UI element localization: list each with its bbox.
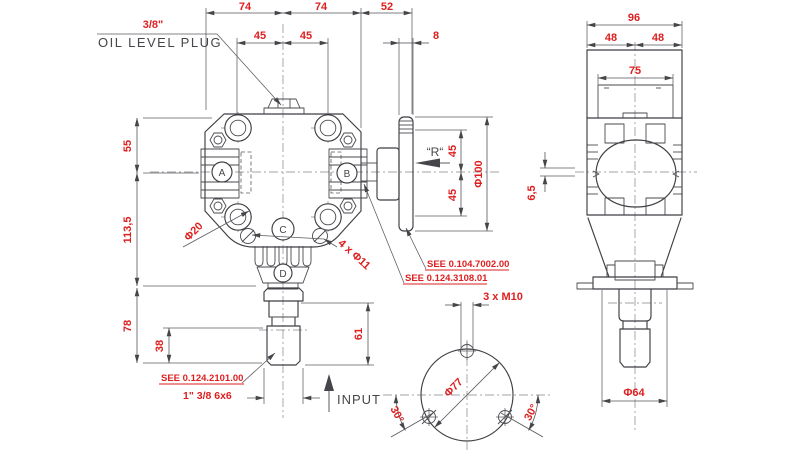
dim-45-right: 45 — [300, 30, 312, 42]
dim-30-left: 30° — [387, 404, 405, 424]
leader-lines — [97, 34, 509, 412]
input-direction-arrow — [324, 374, 334, 391]
dim-45-flange-upper: 45 — [447, 145, 459, 157]
note-see-bearing: SEE 0.124.3108.01 — [405, 273, 488, 284]
dim-61: 61 — [353, 328, 365, 340]
dim-38: 38 — [154, 340, 166, 352]
dim-8: 8 — [433, 30, 439, 42]
note-see-flange: SEE 0.104.7002.00 — [427, 259, 509, 270]
dim-phi-64: Φ64 — [623, 387, 645, 399]
dim-74-left: 74 — [239, 1, 252, 13]
dim-phi-100: Φ100 — [473, 160, 485, 187]
dim-52: 52 — [381, 1, 393, 13]
dim-3x-m10: 3 x M10 — [483, 291, 523, 303]
dim-48-right: 48 — [652, 32, 664, 44]
port-c-label: C — [279, 225, 286, 236]
rotation-direction-arrow — [415, 159, 440, 168]
dim-78: 78 — [122, 320, 134, 332]
dimension-lines — [137, 13, 682, 431]
oil-level-plug — [268, 99, 300, 108]
dim-4x-phi-11: 4 x Φ11 — [335, 237, 372, 272]
dim-96: 96 — [628, 12, 640, 24]
input-label: INPUT — [337, 392, 381, 407]
dim-45-flange-lower: 45 — [447, 189, 459, 201]
rotation-mark-label: “R“ — [427, 145, 444, 159]
note-see-shaft: SEE 0.124.2101.00 — [161, 373, 243, 384]
dim-48-left: 48 — [605, 32, 617, 44]
centerlines — [150, 24, 697, 450]
front-view-output-flange — [361, 117, 413, 231]
dim-spline: 1" 3/8 6x6 — [183, 390, 232, 402]
drawing-svg: 3/8" OIL LEVEL PLUG 74 74 52 45 45 8 96 … — [0, 0, 800, 450]
dim-oil-plug-size: 3/8" — [143, 19, 164, 31]
dim-45-left: 45 — [254, 30, 266, 42]
dim-6-5: 6,5 — [526, 185, 538, 200]
dim-55: 55 — [122, 140, 134, 152]
labels: 3/8" OIL LEVEL PLUG 74 74 52 45 45 8 96 … — [98, 1, 664, 425]
gearbox-technical-drawing: 3/8" OIL LEVEL PLUG 74 74 52 45 45 8 96 … — [0, 0, 800, 450]
front-view-housing — [201, 99, 367, 289]
oil-level-plug-label: OIL LEVEL PLUG — [98, 35, 222, 50]
port-b-label: B — [344, 169, 351, 180]
dim-74-right: 74 — [315, 1, 328, 13]
dim-75: 75 — [629, 65, 641, 77]
port-a-label: A — [219, 168, 226, 179]
dim-phi-20: Φ20 — [182, 220, 206, 244]
port-d-label: D — [279, 269, 286, 280]
front-view-input-shaft — [264, 288, 303, 365]
dim-113-5: 113,5 — [122, 217, 134, 244]
dim-30-right: 30° — [522, 402, 540, 422]
dim-phi-77: Φ77 — [442, 376, 466, 400]
